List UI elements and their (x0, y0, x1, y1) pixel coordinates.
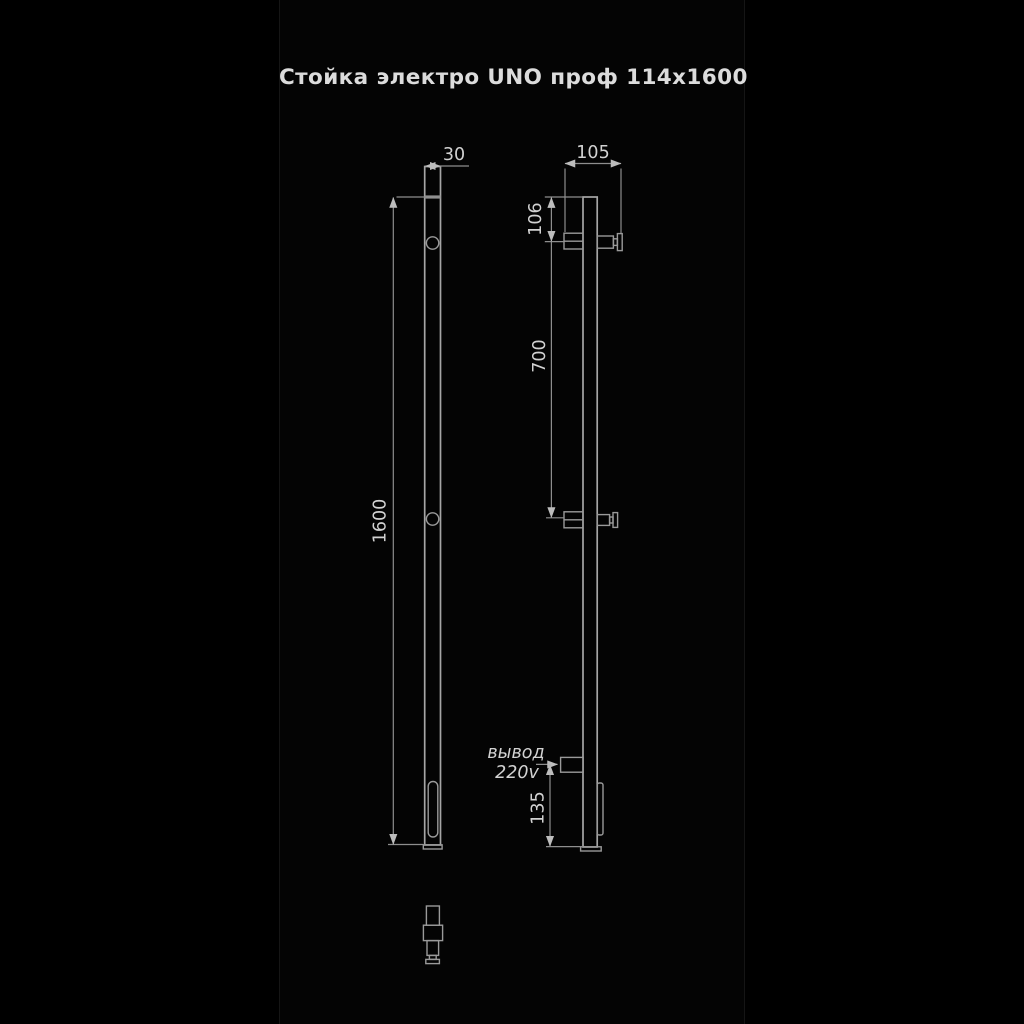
lower-wall-fitting-body (597, 515, 609, 526)
side-rail-body (583, 197, 597, 847)
dim-label-depth-105: 105 (576, 143, 609, 163)
lower-wall-fitting-flange (613, 513, 618, 528)
dim-label-height-1600: 1600 (371, 499, 391, 544)
front-dimensions: 30 1600 (371, 145, 469, 845)
front-bottom-cap (423, 845, 442, 849)
product-card: Стойка электро UNO проф 114x1600 30 (0, 0, 1024, 1024)
dim-label-spacing-700: 700 (530, 339, 550, 372)
fastener-lower-section (427, 941, 439, 956)
fastener-top-section (426, 906, 439, 925)
front-control-slot (428, 782, 438, 838)
outlet-label-line1: вывод (487, 743, 544, 763)
dim-label-outlet-135: 135 (529, 791, 549, 824)
outlet-label-line2: 220v (495, 763, 539, 783)
upper-wall-fitting-body (597, 236, 613, 248)
side-control-panel (597, 783, 603, 835)
technical-drawing: 30 1600 (0, 0, 1024, 1024)
side-bottom-cap (581, 847, 602, 851)
front-rail-body (425, 167, 441, 846)
front-upper-mount-hole (426, 237, 438, 249)
power-outlet-box (561, 757, 584, 772)
front-lower-mount-hole (426, 513, 438, 525)
fastener-middle-section (423, 925, 442, 940)
upper-wall-fitting-flange (617, 234, 622, 251)
fastener-detail (423, 906, 442, 964)
side-view (561, 197, 623, 851)
dim-label-offset-106: 106 (526, 202, 546, 235)
dim-label-width-30: 30 (443, 145, 465, 165)
fastener-base-flange (426, 959, 440, 963)
front-view (423, 167, 442, 850)
